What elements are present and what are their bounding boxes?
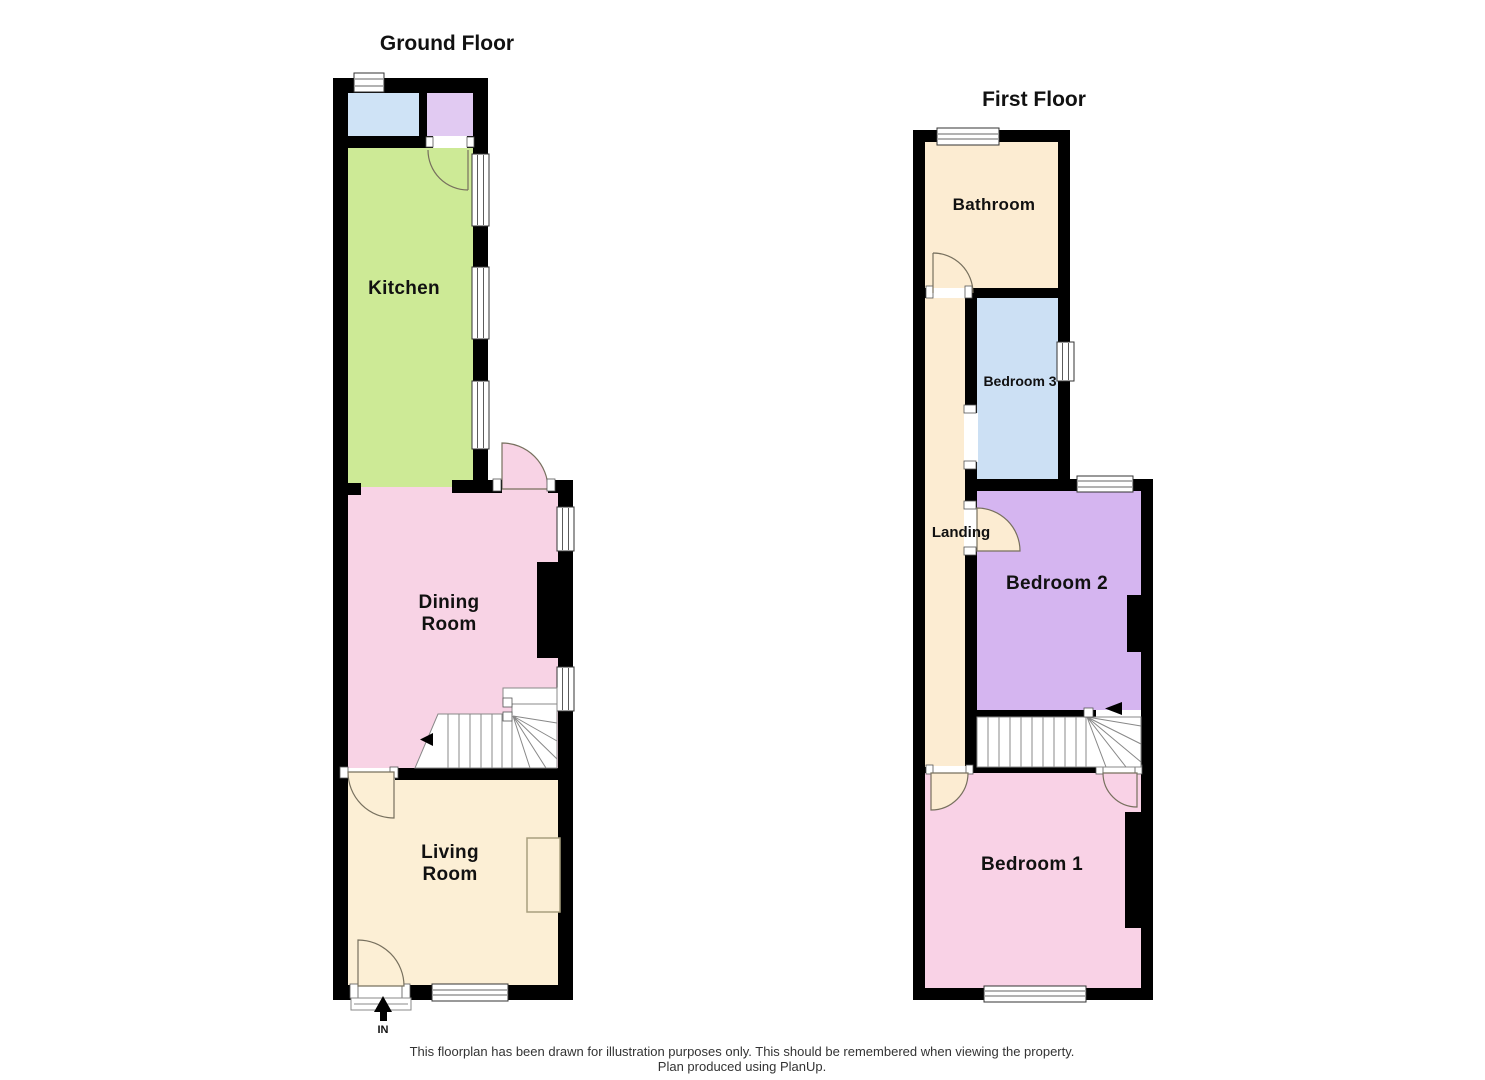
- floorplan-page: Ground Floor: [0, 0, 1485, 1080]
- first-floor-plan: First Floor: [913, 88, 1153, 1002]
- living-room-recess: [527, 838, 560, 912]
- dining-room-label-2: Room: [421, 614, 476, 635]
- ground-floor-title: Ground Floor: [380, 32, 514, 55]
- window-bathroom-top: [937, 128, 999, 145]
- disclaimer: This floorplan has been drawn for illust…: [410, 1044, 1075, 1074]
- first-floor-title: First Floor: [982, 88, 1086, 111]
- bathroom-label: Bathroom: [953, 195, 1036, 214]
- kitchen-label: Kitchen: [368, 278, 440, 299]
- living-room-label-1: Living: [421, 842, 479, 863]
- window-living-bottom: [432, 984, 508, 1001]
- bedroom2-label: Bedroom 2: [1006, 573, 1108, 594]
- disclaimer-line2: Plan produced using PlanUp.: [658, 1059, 826, 1074]
- kitchen-room: [348, 148, 473, 487]
- window-bedroom1-bottom: [984, 986, 1086, 1002]
- floorplan-canvas: Ground Floor: [0, 0, 1485, 1080]
- window-kitchen-1: [472, 154, 489, 226]
- window-bedroom3-right: [1057, 342, 1074, 381]
- bedroom1-label: Bedroom 1: [981, 854, 1083, 875]
- dining-room-label-1: Dining: [419, 592, 480, 613]
- living-room-label-2: Room: [422, 864, 477, 885]
- window-dining-2: [557, 667, 574, 711]
- landing-label: Landing: [932, 524, 990, 541]
- window-bedroom2-top: [1077, 476, 1133, 492]
- window-top: [354, 73, 384, 92]
- window-kitchen-3: [472, 381, 489, 449]
- window-dining-1: [557, 507, 574, 551]
- bedroom1-room: [925, 773, 1141, 988]
- bedroom3-room: [977, 298, 1058, 482]
- ground-floor-plan: Ground Floor: [333, 32, 574, 1036]
- side-entrance-door-arc: [502, 443, 548, 489]
- utility-room: [348, 93, 419, 136]
- disclaimer-line1: This floorplan has been drawn for illust…: [410, 1044, 1075, 1059]
- window-kitchen-2: [472, 267, 489, 339]
- in-label: IN: [378, 1024, 389, 1036]
- bedroom3-label: Bedroom 3: [983, 373, 1056, 389]
- bathroom-room: [925, 142, 1058, 288]
